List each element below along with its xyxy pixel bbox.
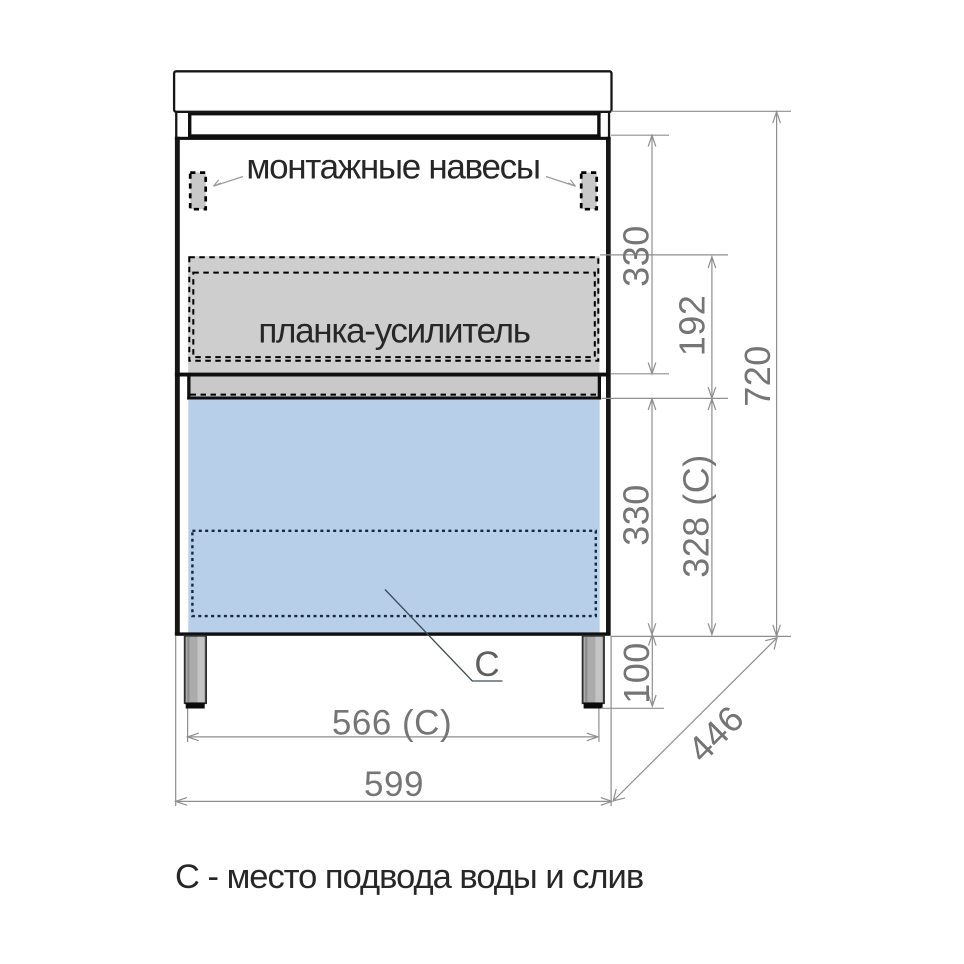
svg-text:330: 330 <box>616 484 657 546</box>
svg-text:192: 192 <box>672 295 713 357</box>
svg-text:330: 330 <box>616 225 657 287</box>
svg-text:100: 100 <box>616 642 657 704</box>
svg-text:566 (С): 566 (С) <box>332 703 452 742</box>
svg-text:С - место подвода воды и слив: С - место подвода воды и слив <box>175 858 643 896</box>
svg-text:599: 599 <box>364 765 424 804</box>
svg-text:С: С <box>474 645 499 684</box>
svg-text:720: 720 <box>737 345 778 407</box>
svg-text:328 (С): 328 (С) <box>676 454 717 578</box>
svg-text:монтажные навесы: монтажные навесы <box>246 148 539 187</box>
svg-text:планка-усилитель: планка-усилитель <box>258 312 529 351</box>
